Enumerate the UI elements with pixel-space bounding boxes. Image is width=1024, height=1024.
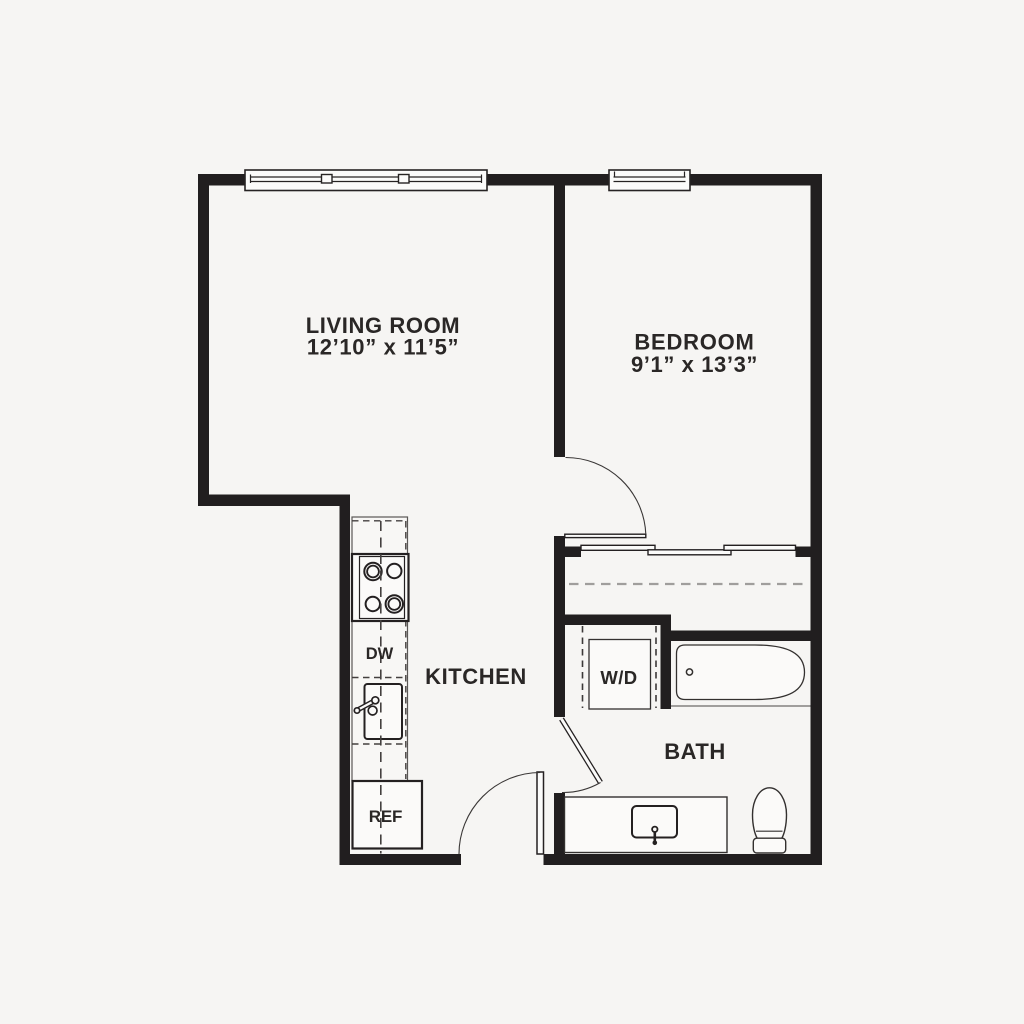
svg-text:DW: DW	[366, 645, 394, 663]
svg-text:W/D: W/D	[600, 667, 637, 688]
svg-text:BATH: BATH	[664, 739, 725, 764]
svg-text:REF: REF	[369, 807, 402, 826]
svg-text:9’1” x 13’3”: 9’1” x 13’3”	[631, 352, 758, 377]
svg-text:12’10” x 11’5”: 12’10” x 11’5”	[307, 335, 459, 360]
svg-text:KITCHEN: KITCHEN	[425, 664, 527, 689]
svg-text:BEDROOM: BEDROOM	[634, 330, 754, 355]
